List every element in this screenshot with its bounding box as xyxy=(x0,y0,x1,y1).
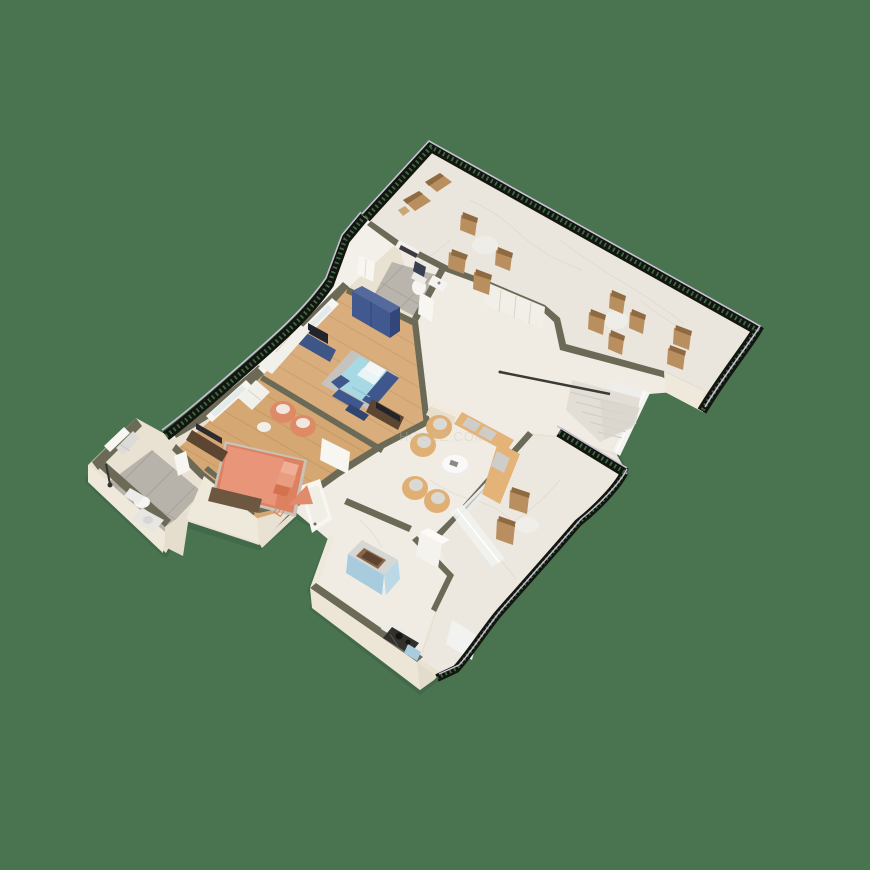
svg-text:HOUZZ.COM: HOUZZ.COM xyxy=(399,429,487,444)
